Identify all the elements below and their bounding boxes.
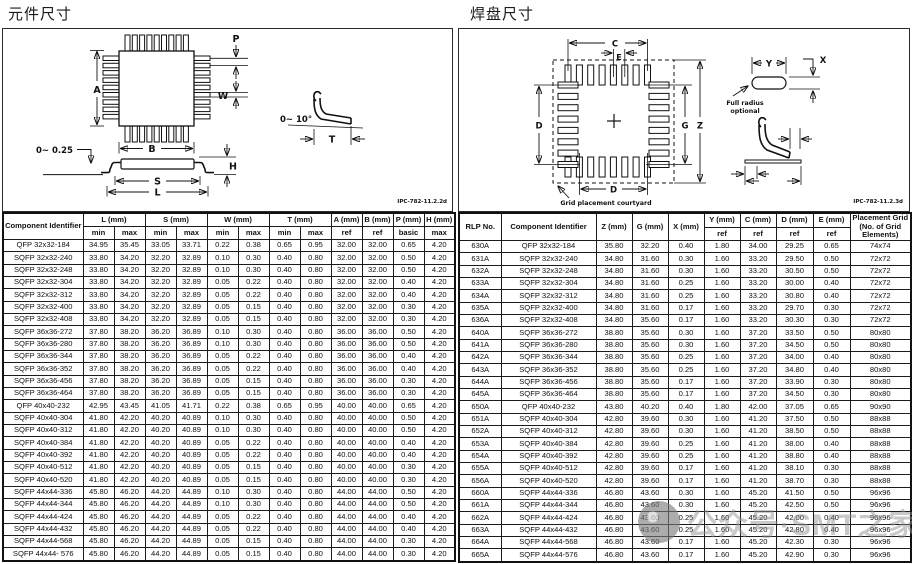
table-row: 660ASQFP 44x44-33646.8043.600.301.6045.2…: [459, 487, 911, 499]
table-cell: 40.00: [362, 437, 393, 449]
table-cell: 0.50: [813, 327, 850, 339]
table-cell: 1.60: [704, 450, 740, 462]
subheader-ref: ref: [704, 227, 740, 241]
table-cell: 634A: [459, 290, 501, 302]
table-cell: 32.00: [331, 240, 362, 252]
table-cell: 32.00: [362, 252, 393, 264]
table-cell: 46.20: [114, 511, 145, 523]
table-cell: 34.20: [114, 264, 145, 276]
table-cell: 40.20: [145, 474, 176, 486]
table-row: SQFP 32x32-31233.8034.2032.2032.890.050.…: [3, 289, 455, 301]
table-cell: 40.89: [176, 461, 207, 473]
table-cell: 636A: [459, 315, 501, 327]
table-cell: 37.80: [83, 338, 114, 350]
table-cell: SQFP 40x40-520: [501, 475, 596, 487]
table-cell: 39.60: [632, 426, 668, 438]
table-cell: 0.50: [813, 265, 850, 277]
table-row: QFP 32x32-18434.9535.4533.0533.710.220.3…: [3, 240, 455, 252]
table-cell: 0.50: [813, 339, 850, 351]
table-row: SQFP 44x44- 57645.8046.2044.2044.890.050…: [3, 548, 455, 561]
dim-P: [210, 45, 248, 79]
table-cell: 46.20: [114, 523, 145, 535]
table-cell: 0.30: [813, 537, 850, 549]
table-cell: 43.60: [632, 500, 668, 512]
table-cell: 33.20: [740, 253, 776, 265]
table-row: 650AQFP 40x40-23243.8040.200.401.8042.00…: [459, 401, 911, 413]
table-cell: 4.20: [424, 363, 455, 375]
table-cell: 34.95: [83, 240, 114, 252]
table-cell: 43.60: [632, 524, 668, 536]
table-cell: 0.40: [269, 412, 300, 424]
table-cell: 0.30: [813, 475, 850, 487]
table-cell: 44.00: [362, 548, 393, 561]
table-cell: 44.00: [331, 523, 362, 535]
table-cell: SQFP 36x36-464: [3, 387, 83, 399]
table-cell: 0.50: [813, 253, 850, 265]
table-cell: 44.00: [331, 498, 362, 510]
table-cell: 46.20: [114, 486, 145, 498]
table-cell: SQFP 36x36-280: [3, 338, 83, 350]
table-cell: 0.40: [269, 523, 300, 535]
table-cell: 0.65: [393, 240, 424, 252]
table-cell: 41.71: [176, 400, 207, 412]
table-cell: 0.15: [238, 313, 269, 325]
table-cell: 36.00: [362, 326, 393, 338]
table-cell: 44.89: [176, 535, 207, 547]
table-cell: 45.20: [740, 487, 776, 499]
table-row: 664ASQFP 44x44-56846.8043.600.171.6045.2…: [459, 537, 911, 549]
table-cell: 0.80: [300, 412, 331, 424]
subheader-min: min: [269, 227, 300, 240]
table-cell: 36.89: [176, 387, 207, 399]
table-cell: SQFP 32x32-408: [501, 315, 596, 327]
table-cell: 0.30: [238, 252, 269, 264]
col-header-rlp: RLP No.: [459, 213, 501, 241]
table-cell: 42.00: [740, 401, 776, 413]
table-cell: 44.00: [362, 486, 393, 498]
dim-label-C: C: [612, 39, 618, 49]
component-dimensions-rows: QFP 32x32-18434.9535.4533.0533.710.220.3…: [3, 240, 455, 562]
table-row: SQFP 32x32-40833.8034.2032.2032.890.050.…: [3, 313, 455, 325]
table-cell: 0.05: [207, 535, 238, 547]
table-cell: QFP 32x32-184: [3, 240, 83, 252]
table-cell: 633A: [459, 278, 501, 290]
table-cell: 32.89: [176, 264, 207, 276]
table-cell: 38.80: [596, 339, 632, 351]
table-row: SQFP 40x40-31241.8042.2040.2040.890.100.…: [3, 424, 455, 436]
subheader-ref: ref: [740, 227, 776, 241]
table-row: 636ASQFP 32x32-40834.8035.600.171.6033.2…: [459, 315, 911, 327]
subheader-max: max: [424, 227, 455, 240]
table-cell: 0.10: [207, 338, 238, 350]
table-cell: 40.00: [362, 412, 393, 424]
col-header-component: Component Identifier: [3, 213, 83, 240]
table-cell: 40.00: [331, 424, 362, 436]
table-cell: 40.20: [145, 424, 176, 436]
dim-label-lead-angle: 0~ 10°: [280, 115, 312, 125]
table-cell: 40.00: [362, 400, 393, 412]
col-header-G: G (mm): [632, 213, 668, 241]
table-cell: 0.40: [269, 289, 300, 301]
table-cell: 0.05: [207, 301, 238, 313]
table-cell: 4.20: [424, 424, 455, 436]
subheader-min: min: [207, 227, 238, 240]
table-cell: 1.60: [704, 389, 740, 401]
table-cell: 36.00: [331, 363, 362, 375]
table-cell: 0.17: [668, 389, 704, 401]
table-cell: 33.80: [83, 252, 114, 264]
table-row: 632ASQFP 32x32-24834.8031.600.301.6033.2…: [459, 265, 911, 277]
table-row: 633ASQFP 32x32-30434.8031.600.251.6033.2…: [459, 278, 911, 290]
table-cell: 0.40: [393, 350, 424, 362]
dim-label-D-side: D: [535, 122, 542, 132]
table-cell: 0.30: [393, 387, 424, 399]
table-row: 631ASQFP 32x32-24034.8031.600.301.6033.2…: [459, 253, 911, 265]
col-header-P: P (mm): [393, 213, 424, 227]
table-cell: 32.89: [176, 313, 207, 325]
table-cell: 4.20: [424, 375, 455, 387]
table-cell: 0.30: [238, 424, 269, 436]
table-cell: 643A: [459, 364, 501, 376]
table-cell: 37.80: [83, 326, 114, 338]
table-cell: 30.80: [776, 290, 813, 302]
table-cell: SQFP 44x44-344: [3, 498, 83, 510]
col-header-X: X (mm): [668, 213, 704, 241]
table-cell: 0.05: [207, 350, 238, 362]
table-cell: 45.80: [83, 498, 114, 510]
table-cell: 0.22: [238, 523, 269, 535]
table-cell: SQFP 44x44-336: [3, 486, 83, 498]
table-cell: 96x96: [850, 487, 911, 499]
dim-label-E: E: [616, 53, 621, 62]
table-cell: 41.80: [83, 474, 114, 486]
table-cell: 35.60: [632, 339, 668, 351]
table-cell: 0.25: [668, 352, 704, 364]
col-header-L: L (mm): [83, 213, 145, 227]
table-cell: 72x72: [850, 253, 911, 265]
table-cell: 0.30: [813, 315, 850, 327]
table-cell: 33.50: [776, 327, 813, 339]
table-cell: 0.95: [300, 400, 331, 412]
table-cell: 44.20: [145, 486, 176, 498]
table-cell: 32.89: [176, 289, 207, 301]
table-cell: 1.60: [704, 376, 740, 388]
table-cell: 0.22: [238, 511, 269, 523]
table-cell: 0.40: [269, 548, 300, 561]
table-cell: 36.89: [176, 363, 207, 375]
lead-on-pad-detail: [731, 118, 812, 185]
table-cell: 0.05: [207, 289, 238, 301]
table-cell: 665A: [459, 549, 501, 562]
table-cell: 36.20: [145, 326, 176, 338]
table-cell: 0.15: [238, 535, 269, 547]
table-row: SQFP 44x44-34445.8046.2044.2044.890.100.…: [3, 498, 455, 510]
table-cell: 45.20: [740, 549, 776, 562]
table-cell: 34.20: [114, 252, 145, 264]
table-cell: 0.80: [300, 264, 331, 276]
subheader-min: min: [145, 227, 176, 240]
table-cell: 0.80: [300, 338, 331, 350]
table-cell: 40.20: [145, 412, 176, 424]
table-cell: 32.00: [362, 240, 393, 252]
table-cell: 651A: [459, 413, 501, 425]
table-cell: 36.00: [331, 326, 362, 338]
table-cell: 0.40: [269, 375, 300, 387]
table-cell: 36.20: [145, 350, 176, 362]
table-cell: 0.80: [300, 289, 331, 301]
table-cell: 40.89: [176, 437, 207, 449]
table-cell: 0.05: [207, 548, 238, 561]
table-cell: SQFP 44x44-432: [3, 523, 83, 535]
table-cell: 96x96: [850, 524, 911, 536]
table-cell: 36.00: [331, 387, 362, 399]
dim-label-P: P: [233, 34, 240, 45]
table-cell: 0.40: [269, 276, 300, 288]
table-cell: 41.80: [83, 461, 114, 473]
table-cell: 0.65: [269, 400, 300, 412]
table-cell: 38.20: [114, 350, 145, 362]
table-cell: 1.60: [704, 549, 740, 562]
table-cell: 36.89: [176, 375, 207, 387]
qfp-right-leads: [194, 56, 210, 119]
table-cell: 0.40: [813, 524, 850, 536]
table-cell: 1.60: [704, 475, 740, 487]
table-cell: 46.80: [596, 549, 632, 562]
table-cell: SQFP 40x40-392: [3, 449, 83, 461]
table-cell: 0.40: [269, 535, 300, 547]
table-cell: 41.80: [83, 437, 114, 449]
table-cell: 0.40: [668, 241, 704, 253]
table-cell: SQFP 36x36-456: [3, 375, 83, 387]
table-cell: 37.80: [83, 363, 114, 375]
table-cell: 33.80: [83, 301, 114, 313]
table-cell: 0.05: [207, 461, 238, 473]
table-cell: 41.20: [740, 438, 776, 450]
table-cell: 0.30: [813, 549, 850, 562]
table-cell: 80x80: [850, 352, 911, 364]
table-cell: 44.00: [331, 486, 362, 498]
table-cell: 4.20: [424, 523, 455, 535]
table-cell: 31.60: [632, 253, 668, 265]
table-cell: 0.80: [300, 461, 331, 473]
table-cell: 88x88: [850, 463, 911, 475]
table-row: 651ASQFP 40x40-30442.8039.600.301.6041.2…: [459, 413, 911, 425]
table-cell: 42.00: [776, 512, 813, 524]
table-cell: 33.20: [740, 315, 776, 327]
table-cell: 45.80: [83, 523, 114, 535]
table-cell: 0.38: [238, 240, 269, 252]
table-row: 665ASQFP 44x44-57646.8043.600.171.6045.2…: [459, 549, 911, 562]
subheader-basic: basic: [393, 227, 424, 240]
table-cell: 72x72: [850, 315, 911, 327]
subheader-min: min: [83, 227, 114, 240]
qfp-body: [119, 51, 194, 126]
table-cell: 663A: [459, 524, 501, 536]
pad-dimensions-rows: 630AQFP 32x32-18435.8032.200.401.8034.00…: [459, 241, 911, 563]
table-cell: 32.89: [176, 301, 207, 313]
table-row: SQFP 44x44-42445.8046.2044.2044.890.050.…: [3, 511, 455, 523]
table-cell: 42.80: [596, 413, 632, 425]
table-cell: 45.20: [740, 512, 776, 524]
table-cell: 641A: [459, 339, 501, 351]
table-cell: 37.20: [740, 339, 776, 351]
table-cell: 42.95: [83, 400, 114, 412]
table-cell: 0.30: [668, 413, 704, 425]
table-row: 653ASQFP 40x40-38442.8039.600.251.6041.2…: [459, 438, 911, 450]
table-cell: 42.80: [596, 426, 632, 438]
table-cell: 0.40: [813, 352, 850, 364]
table-cell: 32.00: [362, 301, 393, 313]
component-dimensions-table: Component Identifier L (mm) S (mm) W (mm…: [2, 212, 456, 562]
table-cell: 0.15: [238, 301, 269, 313]
dim-label-H: H: [229, 162, 237, 173]
table-cell: 0.22: [207, 400, 238, 412]
table-cell: 32.20: [145, 289, 176, 301]
table-cell: 36.20: [145, 363, 176, 375]
table-cell: 37.20: [740, 376, 776, 388]
table-cell: 0.80: [300, 326, 331, 338]
table-cell: 0.25: [668, 278, 704, 290]
table-cell: 0.50: [393, 486, 424, 498]
table-cell: 36.00: [331, 338, 362, 350]
table-cell: 4.20: [424, 400, 455, 412]
table-row: SQFP 36x36-35237.8038.2036.2036.890.050.…: [3, 363, 455, 375]
table-cell: 38.00: [776, 438, 813, 450]
table-cell: 46.20: [114, 548, 145, 561]
table-cell: 0.40: [269, 437, 300, 449]
table-cell: 43.60: [632, 549, 668, 562]
table-cell: 0.80: [300, 363, 331, 375]
table-cell: 0.40: [269, 252, 300, 264]
table-cell: 42.80: [596, 450, 632, 462]
table-cell: 40.89: [176, 449, 207, 461]
table-row: 656ASQFP 40x40-52042.8039.600.171.6041.2…: [459, 475, 911, 487]
table-row: 654ASQFP 40x40-39242.8039.600.251.6041.2…: [459, 450, 911, 462]
table-cell: 0.05: [207, 387, 238, 399]
table-cell: 37.20: [740, 352, 776, 364]
table-cell: 35.60: [632, 315, 668, 327]
dim-label-L: L: [154, 187, 160, 198]
table-cell: 0.50: [813, 500, 850, 512]
table-cell: 1.60: [704, 315, 740, 327]
table-cell: 0.40: [393, 363, 424, 375]
table-cell: 0.40: [393, 449, 424, 461]
table-cell: 29.70: [776, 302, 813, 314]
land-pattern-drawing: C E D G Z D Grid placement courtyard Y X: [459, 29, 908, 210]
table-cell: SQFP 36x36-280: [501, 339, 596, 351]
table-cell: 32.00: [331, 289, 362, 301]
table-cell: 0.65: [813, 401, 850, 413]
dim-label-S: S: [154, 176, 161, 187]
table-cell: 644A: [459, 376, 501, 388]
table-cell: 0.38: [238, 400, 269, 412]
table-cell: 0.30: [668, 327, 704, 339]
table-cell: 0.50: [813, 426, 850, 438]
table-row: SQFP 32x32-24033.8034.2032.2032.890.100.…: [3, 252, 455, 264]
table-cell: 42.20: [114, 449, 145, 461]
subheader-max: max: [300, 227, 331, 240]
subheader-ref: ref: [813, 227, 850, 241]
table-cell: 32.00: [331, 264, 362, 276]
table-cell: 0.30: [668, 487, 704, 499]
table-cell: 0.05: [207, 474, 238, 486]
table-cell: 44.89: [176, 548, 207, 561]
table-cell: 39.60: [632, 475, 668, 487]
table-cell: 74x74: [850, 241, 911, 253]
table-cell: 0.15: [238, 461, 269, 473]
table-cell: 36.00: [362, 338, 393, 350]
table-cell: 0.30: [238, 326, 269, 338]
table-cell: 41.20: [740, 463, 776, 475]
table-cell: 46.80: [596, 500, 632, 512]
table-cell: 4.20: [424, 461, 455, 473]
table-cell: 46.80: [596, 487, 632, 499]
table-cell: 0.30: [393, 535, 424, 547]
table-cell: 0.30: [668, 253, 704, 265]
table-cell: 632A: [459, 265, 501, 277]
table-cell: 80x80: [850, 327, 911, 339]
table-cell: 32.00: [362, 289, 393, 301]
table-row: SQFP 44x44-43245.8046.2044.2044.890.050.…: [3, 523, 455, 535]
table-cell: 0.30: [668, 339, 704, 351]
table-cell: 44.00: [331, 535, 362, 547]
table-cell: SQFP 32x32-408: [3, 313, 83, 325]
table-cell: 41.20: [740, 413, 776, 425]
table-cell: 0.40: [269, 474, 300, 486]
table-row: 641ASQFP 36x36-28038.8035.600.301.6037.2…: [459, 339, 911, 351]
table-cell: 40.89: [176, 424, 207, 436]
table-cell: 4.20: [424, 535, 455, 547]
table-cell: 0.17: [668, 463, 704, 475]
table-cell: SQFP 40x40-384: [3, 437, 83, 449]
subheader-max: max: [114, 227, 145, 240]
table-cell: 0.30: [393, 313, 424, 325]
table-cell: 38.80: [596, 376, 632, 388]
table-cell: SQFP 32x32-248: [501, 265, 596, 277]
table-cell: 1.60: [704, 524, 740, 536]
table-cell: 40.00: [362, 461, 393, 473]
table-cell: 41.20: [740, 475, 776, 487]
table-cell: 0.80: [300, 548, 331, 561]
table-cell: 0.10: [207, 424, 238, 436]
table-cell: 0.22: [238, 363, 269, 375]
table-cell: 1.60: [704, 413, 740, 425]
table-cell: 0.50: [813, 487, 850, 499]
table-cell: 35.60: [632, 364, 668, 376]
table-cell: 0.30: [238, 264, 269, 276]
table-cell: 4.20: [424, 350, 455, 362]
table-cell: 0.80: [300, 535, 331, 547]
ipc-reference-left: IPC-782-11.2.2d: [397, 199, 447, 205]
table-cell: 0.80: [300, 375, 331, 387]
pad-dimensions-table: RLP No. Component Identifier Z (mm) G (m…: [458, 212, 912, 563]
table-cell: 0.40: [269, 486, 300, 498]
dim-label-Y: Y: [765, 59, 773, 69]
table-cell: 37.20: [740, 327, 776, 339]
table-cell: 635A: [459, 302, 501, 314]
table-cell: 32.20: [145, 276, 176, 288]
table-cell: 0.10: [207, 498, 238, 510]
table-cell: 0.15: [238, 375, 269, 387]
table-cell: 88x88: [850, 438, 911, 450]
subheader-ref: ref: [776, 227, 813, 241]
col-header-W: W (mm): [207, 213, 269, 227]
table-cell: SQFP 44x44-344: [501, 500, 596, 512]
table-cell: 1.80: [704, 241, 740, 253]
col-header-H: H (mm): [424, 213, 455, 227]
table-cell: 0.10: [207, 252, 238, 264]
table-cell: 32.89: [176, 252, 207, 264]
